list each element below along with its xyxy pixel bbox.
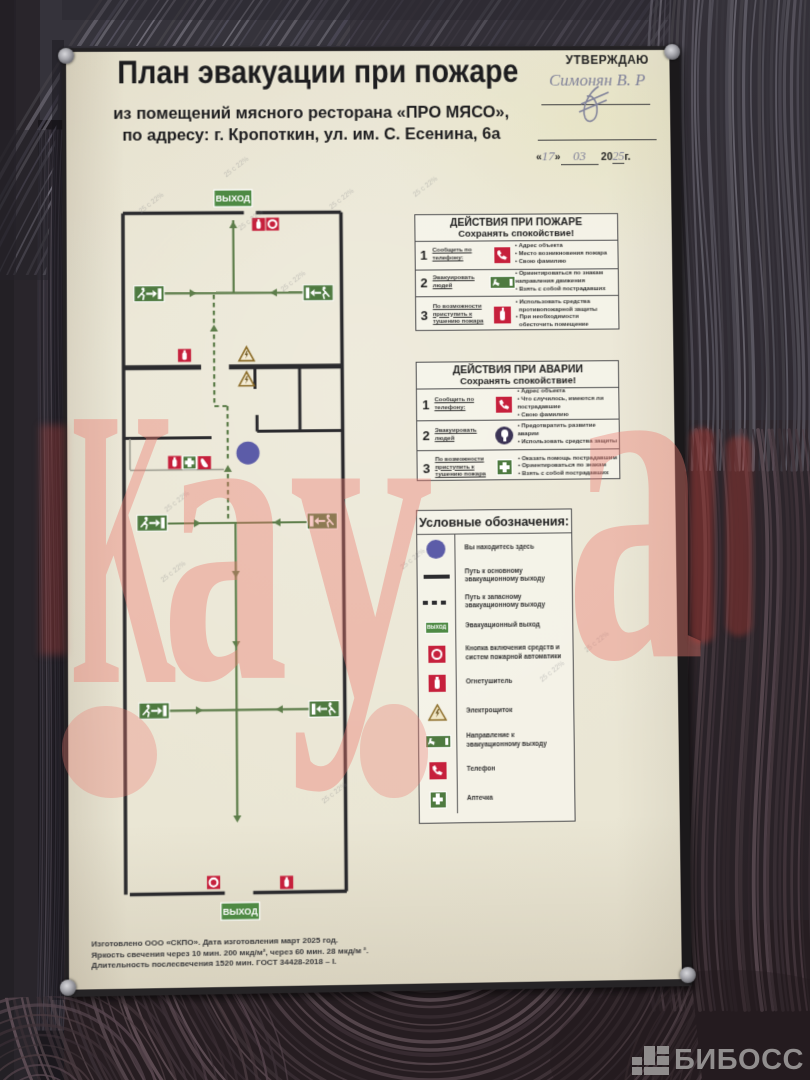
svg-text:ВЫХОД: ВЫХОД [223, 906, 259, 917]
svg-text:ВЫХОД: ВЫХОД [216, 193, 251, 203]
